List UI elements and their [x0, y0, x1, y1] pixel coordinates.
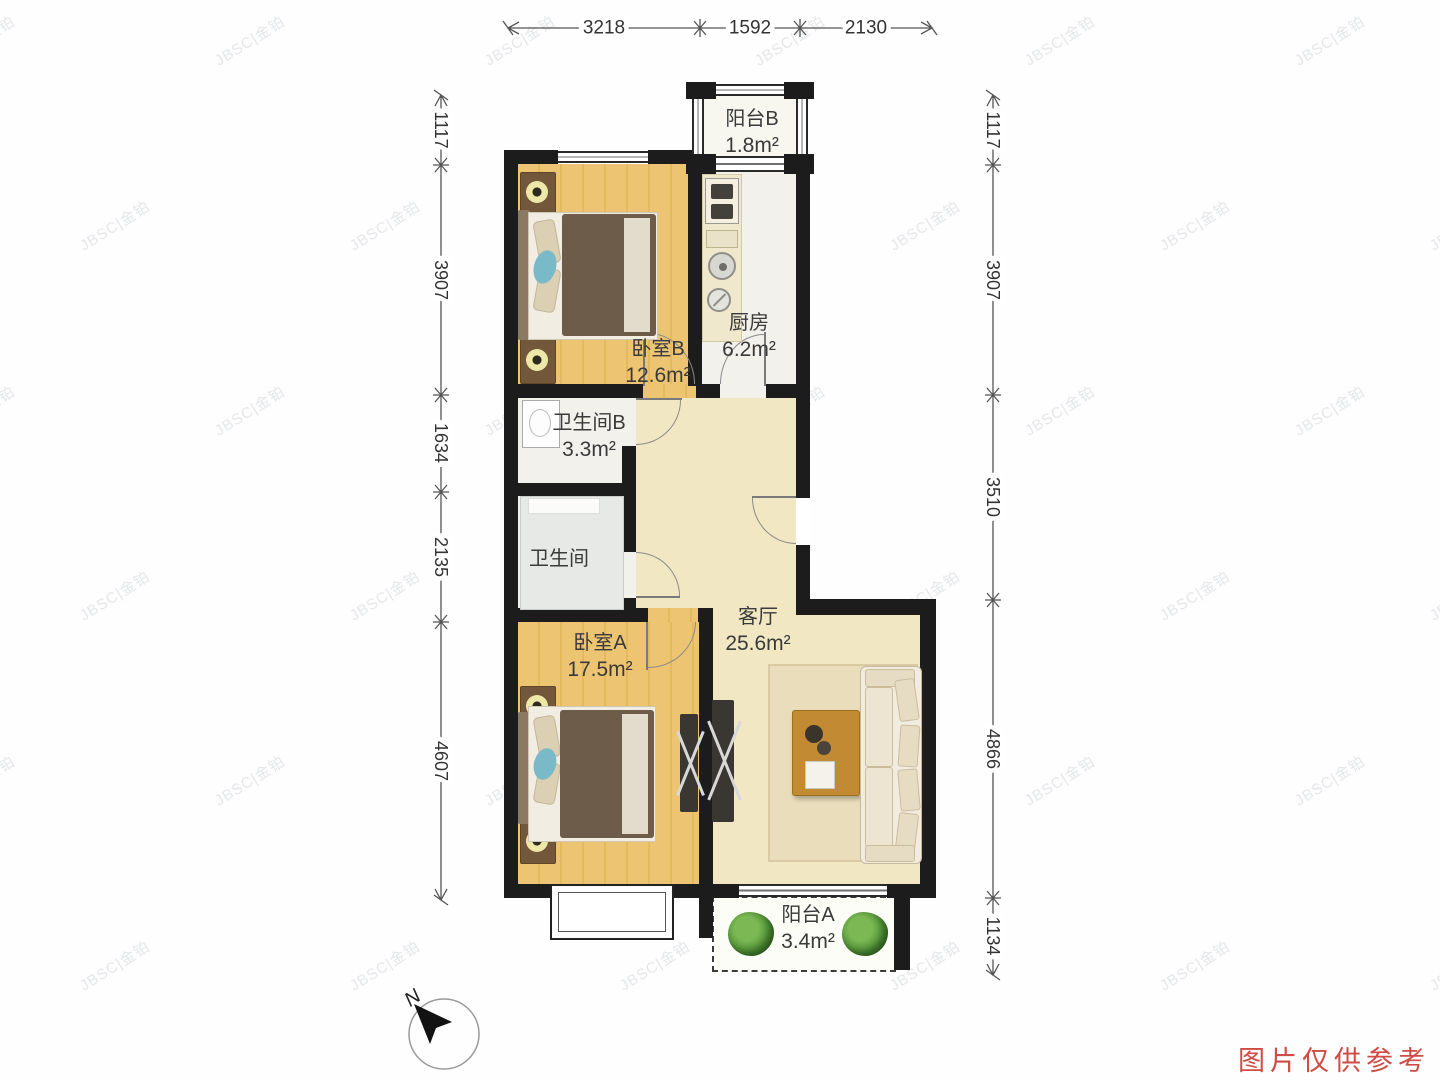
watermark-text: JBSC|金铂 — [75, 936, 153, 996]
living-room-tv — [712, 700, 734, 822]
room-label-bathroom-b: 卫生间B 3.3m² — [534, 410, 644, 463]
bathroom-shelf — [528, 498, 600, 514]
watermark-text: JBSC|金铂 — [345, 196, 423, 256]
balcony-a-right-wall — [894, 896, 910, 970]
dim-right-4: 4866 — [983, 729, 1003, 769]
dim-left-3: 1634 — [431, 423, 451, 463]
sofa-armrest-bottom — [865, 845, 915, 862]
dimension-rail-left: 1117 3907 1634 2135 4607 — [418, 85, 464, 915]
kitchen-basin-slash — [713, 293, 726, 306]
kitchen-basin-icon — [707, 288, 731, 312]
watermark-text: JBSC|金铂 — [885, 196, 963, 256]
kitchen-cutting-board — [706, 230, 738, 248]
bedroom-a-duvet-band — [622, 714, 648, 834]
sofa-back-cushion-1 — [894, 678, 920, 722]
watermark-text: JBSC|金铂 — [1155, 566, 1233, 626]
balcony-b-post-top-left — [686, 82, 716, 99]
room-label-bedroom-a: 卧室A 17.5m² — [550, 630, 650, 683]
watermark-text: JBSC|金铂 — [0, 11, 19, 71]
watermark-text: JBSC|金铂 — [345, 566, 423, 626]
compass-icon: N — [388, 980, 498, 1080]
kitchen-sink-drain — [719, 263, 727, 271]
watermark-text: JBSC|金铂 — [210, 11, 288, 71]
sofa-seat-1 — [865, 687, 893, 767]
dim-left-4: 2135 — [431, 537, 451, 577]
watermark-text: JBSC|金铂 — [1425, 566, 1440, 626]
sofa-back-cushion-3 — [897, 768, 921, 812]
table-tray — [805, 761, 835, 789]
room-label-balcony-b: 阳台B 1.8m² — [702, 106, 802, 159]
wall-right-lower — [920, 615, 936, 884]
room-name: 厨房 — [699, 310, 799, 336]
room-label-balcony-a: 阳台A 3.4m² — [758, 902, 858, 955]
balcony-a-left-stub — [699, 896, 713, 938]
sofa-seat-2 — [865, 767, 893, 847]
entry-door-threshold — [796, 498, 810, 545]
balcony-a-door-window — [739, 884, 887, 897]
sofa-back-cushion-2 — [898, 724, 921, 767]
room-area: 3.3m² — [534, 436, 644, 463]
room-area: 25.6m² — [708, 630, 808, 657]
sofa — [860, 666, 922, 864]
watermark-text: JBSC|金铂 — [1290, 11, 1368, 71]
watermark-text: JBSC|金铂 — [1020, 751, 1098, 811]
bedroom-a-door-threshold — [648, 608, 698, 622]
room-area: 1.8m² — [702, 132, 802, 159]
table-decor-2 — [817, 741, 831, 755]
dim-top-3: 2130 — [845, 18, 887, 39]
room-name: 卫生间B — [534, 410, 644, 436]
kitchen-sink-icon — [708, 252, 736, 280]
bedroom-b-duvet-band — [624, 218, 650, 332]
wall-bedroom-b-top-left — [504, 150, 558, 164]
dim-left-2: 3907 — [431, 260, 451, 300]
room-label-bedroom-b: 卧室B 12.6m² — [608, 336, 708, 389]
room-name: 阳台A — [758, 902, 858, 928]
room-label-living: 客厅 25.6m² — [708, 604, 808, 657]
room-name: 客厅 — [708, 604, 808, 630]
dim-right-2: 3907 — [983, 260, 1003, 300]
dim-top-1: 3218 — [583, 18, 625, 39]
watermark-text: JBSC|金铂 — [0, 381, 19, 441]
room-label-kitchen: 厨房 6.2m² — [699, 310, 799, 363]
watermark-text: JBSC|金铂 — [1155, 196, 1233, 256]
wall-bedroom-b-top-right — [648, 150, 690, 164]
watermark-text: JBSC|金铂 — [210, 751, 288, 811]
room-area: 12.6m² — [608, 362, 708, 389]
room-name: 阳台B — [702, 106, 802, 132]
watermark-text: JBSC|金铂 — [1020, 381, 1098, 441]
room-area: 3.4m² — [758, 928, 858, 955]
bathroom-door-threshold — [622, 552, 636, 598]
dim-right-1: 1117 — [983, 111, 1003, 148]
watermark-text: JBSC|金铂 — [615, 936, 693, 996]
wall-bathb-bath-divider — [504, 483, 636, 496]
dim-right-5: 1134 — [983, 917, 1003, 956]
dim-left-5: 4607 — [431, 741, 451, 781]
stove-burner-1 — [711, 184, 733, 199]
coffee-table — [792, 710, 860, 796]
room-name: 卧室B — [608, 336, 708, 362]
stove-burner-2 — [711, 204, 733, 219]
wall-left — [504, 150, 518, 898]
wall-mid-horizontal-right — [766, 384, 810, 398]
room-name: 卫生间 — [524, 546, 594, 572]
bedroom-a-duvet — [560, 710, 654, 838]
watermark-text: JBSC|金铂 — [210, 381, 288, 441]
bedroom-b-lamp-bottom-icon — [526, 349, 548, 371]
watermark-text: JBSC|金铂 — [0, 751, 19, 811]
dim-left-1: 1117 — [431, 111, 451, 148]
bedroom-b-window — [558, 151, 648, 163]
table-decor-1 — [805, 725, 823, 743]
dimension-rail-top: 3218 1592 2130 — [490, 6, 950, 48]
bedroom-a-bay-window — [550, 884, 674, 940]
wall-bedroom-a-bottom-left — [504, 884, 554, 898]
wall-bedrooma-living-divider — [699, 622, 713, 884]
wall-bedroom-a-top-left — [504, 608, 648, 622]
bedroom-b-duvet — [562, 214, 656, 336]
floorplan-page: JBSC|金铂JBSC|金铂JBSC|金铂JBSC|金铂JBSC|金铂JBSC|… — [0, 0, 1440, 1080]
watermark-text: JBSC|金铂 — [1290, 381, 1368, 441]
bedroom-a-tv — [680, 714, 698, 812]
watermark-text: JBSC|金铂 — [75, 566, 153, 626]
room-label-bathroom: 卫生间 — [524, 546, 594, 572]
kitchen-door-threshold — [720, 384, 766, 398]
kitchen-stove — [705, 178, 739, 224]
dim-right-3: 3510 — [983, 477, 1003, 517]
disclaimer-text: 图片仅供参考 — [1238, 1039, 1430, 1078]
watermark-text: JBSC|金铂 — [1425, 936, 1440, 996]
balcony-b-post-top-right — [784, 82, 814, 99]
room-area: 6.2m² — [699, 336, 799, 363]
bedroom-b-lamp-top-icon — [526, 181, 548, 203]
watermark-text: JBSC|金铂 — [1290, 751, 1368, 811]
watermark-text: JBSC|金铂 — [1425, 196, 1440, 256]
dim-top-2: 1592 — [729, 18, 771, 39]
dimension-rail-right: 1117 3907 3510 4866 1134 — [970, 85, 1016, 985]
watermark-text: JBSC|金铂 — [1155, 936, 1233, 996]
room-name: 卧室A — [550, 630, 650, 656]
wall-right-below-entry — [796, 545, 810, 599]
bathroom-door-leaf — [636, 596, 680, 598]
room-area: 17.5m² — [550, 656, 650, 683]
watermark-text: JBSC|金铂 — [1020, 11, 1098, 71]
watermark-text: JBSC|金铂 — [75, 196, 153, 256]
wall-step — [796, 599, 936, 615]
balcony-b-window-top — [716, 84, 784, 96]
